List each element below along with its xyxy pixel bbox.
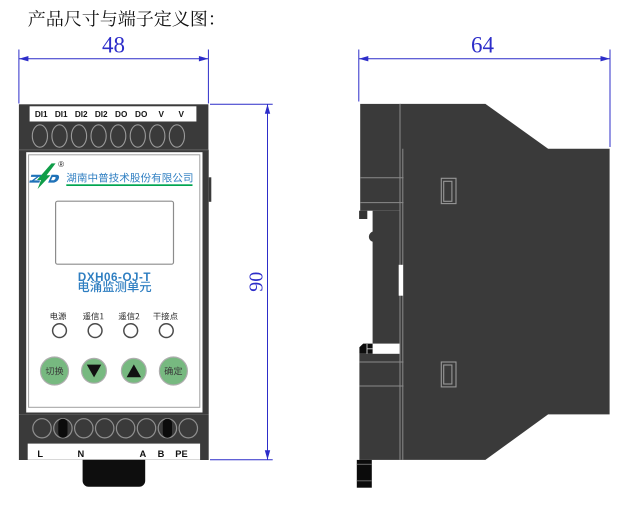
svg-text:DI1: DI1 [55,110,68,119]
svg-text:V: V [158,110,164,119]
svg-text:V: V [178,110,184,119]
svg-text:48: 48 [102,33,125,58]
svg-text:DO: DO [115,110,128,119]
svg-text:DXH06-OJ-T: DXH06-OJ-T [78,271,151,284]
svg-text:L: L [37,449,43,459]
svg-text:64: 64 [471,33,495,58]
svg-text:90: 90 [246,272,268,292]
svg-text:DI1: DI1 [35,110,48,119]
svg-text:DI2: DI2 [95,110,108,119]
svg-text:DI2: DI2 [75,110,88,119]
svg-text:®: ® [58,160,64,169]
svg-text:B: B [158,449,165,459]
svg-text:DO: DO [135,110,148,119]
svg-text:N: N [77,449,84,459]
svg-text:A: A [140,449,147,459]
svg-text:PE: PE [175,449,187,459]
